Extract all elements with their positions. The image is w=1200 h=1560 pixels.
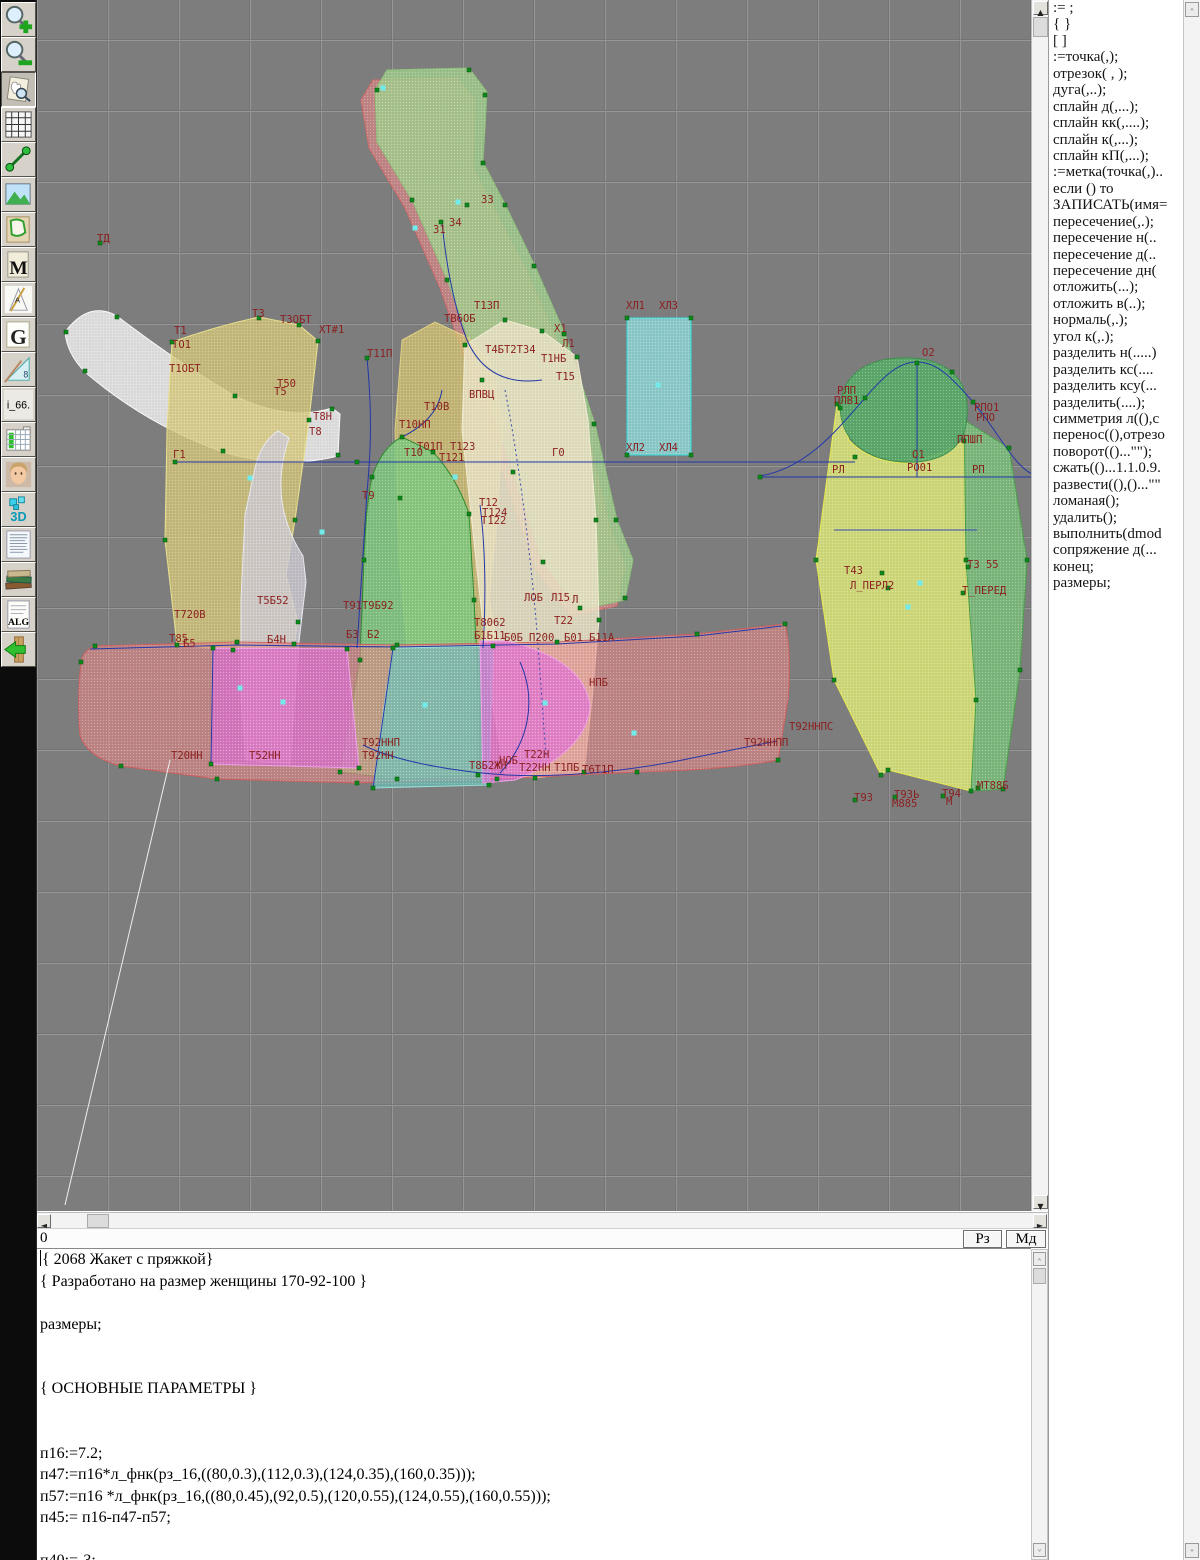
command-item[interactable]: := ;	[1049, 0, 1184, 16]
control-point[interactable]	[969, 789, 973, 793]
spec-list-icon	[2, 528, 35, 561]
i66-button: i_66.	[2, 388, 35, 421]
command-item[interactable]: конец;	[1049, 559, 1184, 575]
control-point[interactable]	[783, 622, 787, 626]
rz-button[interactable]: Рз	[963, 1230, 1002, 1248]
control-point[interactable]	[357, 766, 361, 770]
point-label: Б2	[367, 629, 380, 641]
drawing-surface[interactable]: ТДТ1ТО1Т1ОБТТ3ТЗОБТХТ#1Т50Т5Т8НТ8Г1Т11П3…	[37, 0, 1031, 1211]
point-label: Т9	[362, 490, 375, 502]
point-label: Т92ННПС	[789, 721, 833, 733]
control-point[interactable]	[540, 329, 544, 333]
control-point[interactable]	[115, 315, 119, 319]
pattern-piece-insert-magenta-1[interactable]	[211, 648, 359, 768]
command-item[interactable]: сплайн кк(,....);	[1049, 115, 1184, 131]
code-line[interactable]: п47:=п16*л_фнк(рз_16,((80,0.3),(112,0.3)…	[37, 1464, 1031, 1486]
command-item[interactable]: сплайн к(,...);	[1049, 132, 1184, 148]
point-label: ТЗОБТ	[280, 314, 312, 326]
point-label: ХЛ2	[626, 442, 645, 454]
point-label: НПБ	[589, 677, 608, 689]
point-label: Л_ПЕРЛ2	[850, 580, 894, 592]
control-point[interactable]	[541, 560, 545, 564]
point-label: Т52НН	[249, 750, 281, 762]
point-label: П200	[529, 632, 554, 644]
code-line[interactable]: п45:= п16-п47-п57;	[37, 1507, 1031, 1529]
control-point[interactable]	[370, 475, 374, 479]
i66-button-button[interactable]: i_66.	[1, 387, 36, 422]
point-label: Б3	[346, 629, 359, 641]
point-label: Л1	[562, 338, 575, 350]
pattern-piece-sleeve-cap-green[interactable]	[840, 358, 967, 462]
control-point[interactable]	[307, 418, 311, 422]
size-table-button[interactable]	[1, 422, 36, 457]
control-point[interactable]	[623, 596, 627, 600]
control-point[interactable]	[119, 764, 123, 768]
control-point[interactable]	[163, 538, 167, 542]
svg-text:3D: 3D	[10, 510, 26, 524]
text-caret	[40, 1250, 41, 1266]
cursor-coordinate-value: 0	[40, 1230, 48, 1247]
point-label: Т10В	[424, 401, 449, 413]
control-point[interactable]	[487, 783, 491, 787]
control-point[interactable]	[398, 496, 402, 500]
point-label: РО01	[907, 462, 932, 474]
code-line[interactable]	[37, 1421, 1031, 1443]
command-item[interactable]: пересечение н(..	[1049, 230, 1184, 246]
point-label: РПО	[976, 412, 995, 424]
control-point[interactable]	[592, 422, 596, 426]
md-button[interactable]: Мд	[1006, 1230, 1046, 1248]
grazia-g-icon: G	[2, 318, 35, 351]
3d-button[interactable]: 3D	[1, 492, 36, 527]
control-point[interactable]	[974, 698, 978, 702]
status-row: 0 Рз Мд	[37, 1228, 1048, 1249]
control-point[interactable]	[221, 449, 225, 453]
point-label: 31	[433, 224, 446, 236]
scroll-up-arrow-icon[interactable]: ▲	[1033, 1, 1048, 15]
control-point[interactable]	[465, 203, 469, 207]
control-point[interactable]	[209, 762, 213, 766]
point-label: Т93	[854, 792, 873, 804]
canvas-vscrollbar[interactable]: ▲ ▼	[1031, 0, 1049, 1211]
control-point[interactable]	[555, 640, 559, 644]
selected-point[interactable]	[381, 86, 386, 91]
command-item[interactable]: :=метка(точка(,)..	[1049, 164, 1184, 180]
control-point[interactable]	[293, 518, 297, 522]
scroll-down-arrow-icon[interactable]: ▼	[1033, 1195, 1048, 1209]
control-point[interactable]	[689, 316, 693, 320]
control-point[interactable]	[355, 460, 359, 464]
control-point[interactable]	[336, 453, 340, 457]
command-item[interactable]: пересечение(,.);	[1049, 214, 1184, 230]
control-point[interactable]	[467, 512, 471, 516]
point-label: РП	[972, 464, 985, 476]
control-point[interactable]	[463, 343, 467, 347]
control-point[interactable]	[863, 396, 867, 400]
command-item[interactable]: сжать(()...1.1.0.9.	[1049, 460, 1184, 476]
canvas-vscroll-thumb[interactable]	[1033, 17, 1048, 37]
measure-button[interactable]	[1, 142, 36, 177]
point-label: Т1	[174, 325, 187, 337]
selected-point[interactable]	[656, 383, 661, 388]
editor-vscroll-thumb[interactable]	[1033, 1268, 1046, 1284]
point-label: Т22НН	[519, 762, 551, 774]
control-point[interactable]	[355, 781, 359, 785]
control-point[interactable]	[880, 571, 884, 575]
point-label: О1	[912, 449, 925, 461]
svg-text:A: A	[15, 295, 21, 304]
point-label: Т720В	[174, 609, 206, 621]
point-label: Г0	[552, 447, 565, 459]
command-item[interactable]: если () то	[1049, 181, 1184, 197]
control-point[interactable]	[391, 646, 395, 650]
control-point[interactable]	[467, 68, 471, 72]
books-button[interactable]	[1, 562, 36, 597]
control-point[interactable]	[292, 642, 296, 646]
control-point[interactable]	[594, 518, 598, 522]
command-item[interactable]: сплайн кП(,...);	[1049, 148, 1184, 164]
svg-text:M: M	[9, 258, 27, 279]
point-label: Т3	[252, 308, 265, 320]
control-point[interactable]	[375, 88, 379, 92]
command-item[interactable]: разделить ксу(...	[1049, 378, 1184, 394]
control-point[interactable]	[495, 777, 499, 781]
control-point[interactable]	[1025, 558, 1029, 562]
control-point[interactable]	[235, 640, 239, 644]
control-point[interactable]	[915, 361, 919, 365]
selected-point[interactable]	[543, 701, 548, 706]
point-label: Т1НБ	[541, 353, 566, 365]
drafting-tools-button[interactable]: A	[1, 282, 36, 317]
control-point[interactable]	[233, 394, 237, 398]
control-point[interactable]	[886, 768, 890, 772]
code-line[interactable]	[37, 1529, 1031, 1551]
control-point[interactable]	[371, 786, 375, 790]
image-icon	[2, 178, 35, 211]
control-point[interactable]	[832, 678, 836, 682]
point-label: Б11А	[589, 632, 615, 644]
code-line[interactable]: { 2068 Жакет с пряжкой}	[37, 1249, 1031, 1271]
methods-m-button[interactable]: M	[1, 247, 36, 282]
model-photo-icon	[2, 458, 35, 491]
control-point[interactable]	[338, 770, 342, 774]
pattern-sheet-button[interactable]	[1, 212, 36, 247]
point-label: Т15	[556, 371, 575, 383]
svg-text:G: G	[10, 325, 27, 349]
point-label: Т22Н	[524, 749, 549, 761]
control-point[interactable]	[575, 355, 579, 359]
point-label: Т13П	[474, 300, 499, 312]
command-item[interactable]: удалить();	[1049, 510, 1184, 526]
code-line[interactable]: { Разработано на размер женщины 170-92-1…	[37, 1271, 1031, 1293]
control-point[interactable]	[695, 632, 699, 636]
pattern-cad-app: MAG8i_66.3DALG ТДТ1ТО1Т1ОБТТ3ТЗОБТХТ#1Т5…	[0, 0, 1200, 1560]
control-point[interactable]	[64, 330, 68, 334]
point-label: Т5	[274, 386, 287, 398]
methods-m-icon: M	[2, 248, 35, 281]
command-item[interactable]: выполнить(dmod	[1049, 526, 1184, 542]
alg-button[interactable]: ALG	[1, 597, 36, 632]
point-label: Б5	[183, 638, 196, 650]
selected-point[interactable]	[456, 200, 461, 205]
control-point[interactable]	[215, 777, 219, 781]
control-point[interactable]	[362, 558, 366, 562]
command-item[interactable]: пересечение дн(	[1049, 263, 1184, 279]
svg-text:ALG: ALG	[8, 617, 29, 628]
point-label: Т8Н	[313, 411, 332, 423]
code-line[interactable]: { ОСНОВНЫЕ ПАРАМЕТРЫ }	[37, 1378, 1031, 1400]
zoom-in-button[interactable]	[1, 2, 36, 37]
scroll-right-arrow-icon[interactable]: ►	[1033, 1214, 1047, 1228]
3d-icon: 3D	[2, 493, 35, 526]
control-point[interactable]	[483, 93, 487, 97]
point-label: Б0Б	[504, 632, 523, 644]
command-item[interactable]: :=точка(,);	[1049, 49, 1184, 65]
point-label: Т11П	[367, 348, 392, 360]
point-label: Т91Т9Б92	[343, 600, 394, 612]
control-point[interactable]	[296, 620, 300, 624]
control-point[interactable]	[776, 758, 780, 762]
control-point[interactable]	[316, 339, 320, 343]
control-point[interactable]	[231, 648, 235, 652]
point-label: Б4Н	[267, 634, 286, 646]
alg-icon: ALG	[2, 598, 35, 631]
code-line[interactable]: размеры;	[37, 1314, 1031, 1336]
control-point[interactable]	[395, 777, 399, 781]
command-item[interactable]: размеры;	[1049, 575, 1184, 591]
left-toolbar: MAG8i_66.3DALG	[0, 0, 37, 1560]
selected-point[interactable]	[906, 605, 911, 610]
control-point[interactable]	[1018, 668, 1022, 672]
point-label: Т10НП	[399, 419, 431, 431]
drafting-tools-icon: A	[2, 283, 35, 316]
scroll-left-arrow-icon[interactable]: ◄	[37, 1214, 51, 1228]
exit-button[interactable]	[1, 632, 36, 667]
command-item[interactable]: сплайн д(,...);	[1049, 99, 1184, 115]
point-label: ПЛВ1	[834, 395, 859, 407]
control-point[interactable]	[445, 278, 449, 282]
point-label: РЛ	[832, 464, 845, 476]
selected-point[interactable]	[238, 686, 243, 691]
control-point[interactable]	[597, 618, 601, 622]
control-point[interactable]	[689, 453, 693, 457]
point-label: Т3 55	[967, 559, 999, 571]
control-point[interactable]	[533, 776, 537, 780]
point-label: Т22	[554, 615, 573, 627]
selected-point[interactable]	[248, 476, 253, 481]
control-point[interactable]	[472, 598, 476, 602]
canvas-hscroll-thumb[interactable]	[87, 1214, 109, 1228]
command-item[interactable]: отложить в(..);	[1049, 296, 1184, 312]
selected-point[interactable]	[918, 581, 923, 586]
point-label: Т121	[439, 452, 464, 464]
control-point[interactable]	[410, 198, 414, 202]
point-label: Б01	[564, 632, 583, 644]
command-item[interactable]: угол к(,.);	[1049, 329, 1184, 345]
scroll-down-arrow-icon[interactable]: ˅	[1033, 1543, 1046, 1557]
code-line[interactable]: п16:=7.2;	[37, 1443, 1031, 1465]
point-label: МТ88Б	[977, 780, 1009, 792]
point-label: Т5Б52	[257, 595, 289, 607]
pattern-sheet-icon	[2, 213, 35, 246]
scroll-up-arrow-icon[interactable]: ˄	[1185, 2, 1199, 17]
point-label: ТО1	[172, 339, 191, 351]
point-label: Б1Б11	[474, 630, 506, 642]
control-point[interactable]	[614, 518, 618, 522]
grazia-g-button[interactable]: G	[1, 317, 36, 352]
control-point[interactable]	[758, 475, 762, 479]
control-point[interactable]	[83, 369, 87, 373]
point-label: Т1ОБТ	[169, 363, 201, 375]
spec-list-button[interactable]	[1, 527, 36, 562]
control-point[interactable]	[395, 643, 399, 647]
point-label: ВПВЦ	[469, 389, 495, 401]
pattern-canvas[interactable]: ТДТ1ТО1Т1ОБТТ3ТЗОБТХТ#1Т50Т5Т8НТ8Г1Т11П3…	[37, 0, 1032, 1211]
control-point[interactable]	[625, 316, 629, 320]
point-label: Т92ННПП	[744, 737, 788, 749]
sheet-preview-button[interactable]	[1, 72, 36, 107]
code-editor[interactable]: { 2068 Жакет с пряжкой}{ Разработано на …	[37, 1248, 1031, 1560]
point-label: ХТ#1	[319, 324, 344, 336]
command-item[interactable]: разделить(....);	[1049, 395, 1184, 411]
zoom-out-icon	[2, 38, 35, 71]
measure-icon	[2, 143, 35, 176]
command-panel: := ;{ }[ ]:=точка(,);отрезок( , );дуга(,…	[1048, 0, 1184, 1560]
code-line[interactable]	[37, 1400, 1031, 1422]
command-item[interactable]: дуга(,..);	[1049, 82, 1184, 98]
point-label: Т20НН	[171, 750, 203, 762]
control-point[interactable]	[358, 658, 362, 662]
control-point[interactable]	[1007, 446, 1011, 450]
point-label: ХЛ1	[626, 300, 645, 312]
code-line[interactable]	[37, 1357, 1031, 1379]
point-label: Т_ПЕРЕД	[962, 585, 1007, 597]
command-item[interactable]: ломаная();	[1049, 493, 1184, 509]
command-item[interactable]: [ ]	[1049, 33, 1184, 49]
point-label: Л	[572, 594, 578, 606]
point-label: Т8062	[474, 617, 506, 629]
point-label: Т92НН	[362, 750, 394, 762]
control-point[interactable]	[480, 378, 484, 382]
point-label: 34	[449, 217, 462, 229]
control-point[interactable]	[476, 773, 480, 777]
point-label: 33	[481, 194, 494, 206]
code-line[interactable]	[37, 1292, 1031, 1314]
point-label: ХЛ4	[659, 442, 678, 454]
point-label: Т10	[404, 447, 423, 459]
selected-point[interactable]	[281, 700, 286, 705]
point-label: Т92ННП	[362, 737, 400, 749]
command-item[interactable]: ЗАПИСАТЬ(имя=	[1049, 197, 1184, 213]
ruler-8-button[interactable]: 8	[1, 352, 36, 387]
command-item[interactable]: нормаль(,.);	[1049, 312, 1184, 328]
point-label: Т43	[844, 565, 863, 577]
canvas-hscrollbar[interactable]: ◄ ►	[37, 1212, 1048, 1229]
grid-icon	[2, 108, 35, 141]
point-label: НОБ	[499, 755, 518, 767]
control-point[interactable]	[481, 161, 485, 165]
control-point[interactable]	[400, 435, 404, 439]
point-label: Л15	[551, 592, 570, 604]
control-point[interactable]	[853, 455, 857, 459]
image-button[interactable]	[1, 177, 36, 212]
svg-text:i_66.: i_66.	[7, 399, 30, 411]
command-item[interactable]: перенос((),отрезо	[1049, 427, 1184, 443]
scroll-up-arrow-icon[interactable]: ˄	[1033, 1252, 1046, 1266]
control-point[interactable]	[93, 644, 97, 648]
selected-point[interactable]	[453, 475, 458, 480]
control-point[interactable]	[578, 606, 582, 610]
point-label: Т4БТ2Т34	[485, 344, 536, 356]
control-point[interactable]	[511, 470, 515, 474]
command-item[interactable]: развести((),()...""	[1049, 477, 1184, 493]
control-point[interactable]	[635, 770, 639, 774]
command-item[interactable]: симметрия л((),с	[1049, 411, 1184, 427]
size-table-icon	[2, 423, 35, 456]
control-point[interactable]	[503, 318, 507, 322]
command-panel-scrollbar[interactable]: ˄ ˅	[1183, 0, 1200, 1560]
svg-text:8: 8	[23, 369, 28, 379]
point-label: Т122	[481, 515, 506, 527]
sheet-preview-icon	[2, 73, 35, 106]
command-item[interactable]: разделить кс(....	[1049, 362, 1184, 378]
command-item[interactable]: { }	[1049, 16, 1184, 32]
point-label: ХЛ3	[659, 300, 678, 312]
point-label: ТВ6ОБ	[444, 313, 476, 325]
point-label: М	[946, 796, 952, 808]
control-point[interactable]	[950, 370, 954, 374]
command-item[interactable]: пересечение д(..	[1049, 247, 1184, 263]
command-item[interactable]: отложить(...);	[1049, 279, 1184, 295]
point-label: ТД	[97, 233, 110, 245]
control-point[interactable]	[79, 660, 83, 664]
selected-point[interactable]	[320, 530, 325, 535]
point-label: М885	[892, 798, 917, 810]
zoom-out-button[interactable]	[1, 37, 36, 72]
selected-point[interactable]	[413, 226, 418, 231]
scroll-down-arrow-icon[interactable]: ˅	[1185, 1543, 1199, 1558]
control-point[interactable]	[532, 264, 536, 268]
grid-button[interactable]	[1, 107, 36, 142]
editor-vscrollbar[interactable]: ˄ ˅	[1031, 1249, 1048, 1560]
exit-icon	[2, 633, 35, 666]
code-line[interactable]: п40:=-3;	[37, 1550, 1031, 1560]
control-point[interactable]	[491, 644, 495, 648]
point-label: ППШП	[957, 434, 982, 446]
ruler-8-icon: 8	[2, 353, 35, 386]
code-line[interactable]	[37, 1335, 1031, 1357]
command-item[interactable]: поворот(()..."");	[1049, 444, 1184, 460]
point-label: Т1ПБ	[554, 762, 579, 774]
model-photo-button[interactable]	[1, 457, 36, 492]
control-point[interactable]	[879, 773, 883, 777]
point-label: О2	[922, 347, 935, 359]
selected-point[interactable]	[632, 731, 637, 736]
code-line[interactable]: п57:=п16 *л_фнк(рз_16,((80,0.45),(92,0.5…	[37, 1486, 1031, 1508]
control-point[interactable]	[814, 558, 818, 562]
command-item[interactable]: разделить н(.....)	[1049, 345, 1184, 361]
selected-point[interactable]	[423, 703, 428, 708]
control-point[interactable]	[211, 646, 215, 650]
point-label: ЛОБ	[524, 592, 543, 604]
control-point[interactable]	[345, 647, 349, 651]
point-label: Г1	[173, 449, 186, 461]
point-label: Т8	[309, 426, 322, 438]
control-point[interactable]	[503, 203, 507, 207]
command-item[interactable]: отрезок( , );	[1049, 66, 1184, 82]
command-item[interactable]: сопряжение д(...	[1049, 542, 1184, 558]
zoom-in-icon	[2, 3, 35, 36]
